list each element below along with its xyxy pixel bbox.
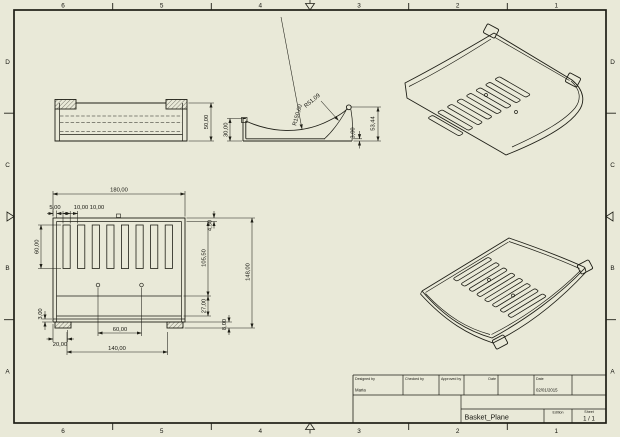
dim-plan-tab-height: 8,00: [222, 319, 228, 330]
zone-label: A: [610, 369, 615, 376]
dim-plan-overall-depth: 148,00: [246, 263, 252, 281]
zone-label: 4: [259, 428, 263, 435]
iso-bottom-tab-2: [565, 73, 581, 88]
designed-by-label: Designed by: [355, 377, 375, 381]
zone-label: A: [5, 369, 10, 376]
iso-view-top: [421, 238, 594, 349]
dim-side-inner-radius: R51,09: [303, 93, 321, 110]
zone-label: 1: [555, 3, 559, 10]
center-arrow-top-icon: [306, 4, 315, 11]
date-value: 02/01/2015: [536, 388, 558, 393]
dim-side-base-thickness: 3,00: [351, 127, 357, 138]
zone-label: 6: [61, 428, 65, 435]
dim-plan-tab-span: 140,00: [108, 346, 126, 352]
front-dim-lines: [189, 103, 215, 141]
dim-plan-top-margin: 4,50: [208, 220, 214, 231]
sheet-frame: [4, 0, 616, 434]
side-dim-lines: [227, 107, 381, 149]
zone-label: 3: [357, 428, 361, 435]
zone-label: C: [5, 162, 10, 169]
front-view: [55, 100, 214, 142]
dim-plan-slot-length: 60,00: [35, 240, 41, 255]
zone-ticks: [4, 3, 616, 430]
zone-label: 5: [160, 428, 164, 435]
plan-slots: [63, 225, 172, 269]
plan-hole-2: [140, 283, 144, 287]
edition-label: Edition: [553, 411, 564, 415]
iso-top-tab-2: [577, 260, 593, 275]
designed-by-value: Maria: [355, 388, 366, 393]
zone-label: 2: [456, 3, 460, 10]
plan-top-mark: [117, 214, 121, 218]
part-name: Basket_Plane: [465, 413, 509, 422]
dim-plan-slot-zone-depth: 105,50: [202, 249, 208, 267]
iso-bottom-hole-2: [515, 111, 518, 114]
drawing-sheet: 6 5 4 3 2 1 6 5 4 3 2 1 D C B A D C B A …: [0, 0, 620, 437]
zone-label: B: [5, 265, 9, 272]
drawing-canvas: 6 5 4 3 2 1 6 5 4 3 2 1 D C B A D C B A …: [0, 0, 620, 437]
iso-top-hole-1: [488, 279, 491, 282]
side-view: [227, 17, 381, 149]
date2-label: Date: [536, 377, 544, 381]
date-label: Date: [488, 377, 496, 381]
dim-plan-lower-zone: 27,00: [202, 299, 208, 314]
title-block-text: Designed by Maria Checked by Approved by…: [355, 377, 595, 423]
iso-view-bottom: [405, 24, 583, 155]
sheet-label: Sheet: [584, 410, 593, 414]
side-hook-eye: [346, 105, 351, 110]
dim-plan-hole-spacing: 60,00: [113, 327, 128, 333]
dim-plan-slot-gap: 10,00: [90, 205, 105, 211]
dim-side-left-height: 30,00: [224, 123, 230, 138]
approved-by-label: Approved by: [441, 377, 461, 381]
plan-right-tab: [167, 322, 183, 328]
plan-hole-1: [96, 283, 100, 287]
centering-marks: [7, 0, 613, 434]
front-left-tab: [55, 100, 76, 110]
dim-side-outer-radius: R150,00: [292, 104, 304, 127]
dim-plan-tab-offset: 20,00: [53, 342, 68, 348]
dim-front-height: 50,00: [204, 115, 210, 130]
zone-label: D: [610, 59, 615, 66]
plan-left-tab: [55, 322, 71, 328]
iso-bottom-slots: [428, 77, 531, 136]
zone-label: 6: [61, 3, 65, 10]
center-arrow-bottom-icon: [306, 423, 315, 430]
zone-label: C: [610, 162, 615, 169]
zone-label: 1: [555, 428, 559, 435]
center-arrow-right-icon: [606, 212, 613, 221]
zone-labels: 6 5 4 3 2 1 6 5 4 3 2 1 D C B A D C B A: [5, 3, 615, 436]
sheet-value: 1 / 1: [583, 417, 595, 423]
dim-plan-overall-width: 180,00: [110, 188, 128, 194]
zone-label: 3: [357, 3, 361, 10]
zone-label: 5: [160, 3, 164, 10]
iso-top-slots: [453, 257, 547, 318]
side-radius-leaders: [281, 17, 339, 129]
zone-label: 4: [259, 3, 263, 10]
checked-by-label: Checked by: [405, 377, 424, 381]
zone-label: B: [610, 265, 614, 272]
zone-label: D: [5, 59, 10, 66]
border-frame: [14, 10, 606, 423]
iso-bottom-tab-1: [483, 24, 499, 39]
dim-plan-slot-width: 10,00: [74, 205, 89, 211]
front-right-tab: [166, 100, 187, 110]
zone-label: 2: [456, 428, 460, 435]
center-arrow-left-icon: [7, 212, 14, 221]
dim-plan-edge-to-slot: 5,00: [49, 205, 60, 211]
dim-plan-wall-thickness: 3,00: [38, 308, 44, 319]
dim-side-right-height: 53,44: [371, 115, 377, 130]
